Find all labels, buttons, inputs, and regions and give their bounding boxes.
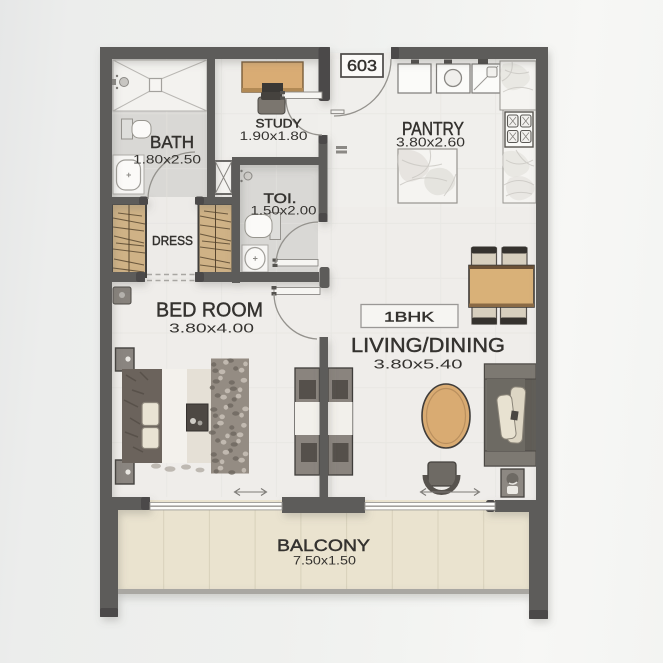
svg-text:DRESS: DRESS [152,234,193,248]
svg-text:1BHK: 1BHK [384,309,435,325]
svg-text:3.80x5.40: 3.80x5.40 [374,357,463,372]
svg-text:BALCONY: BALCONY [277,537,370,555]
svg-text:1.50x2.00: 1.50x2.00 [251,206,317,218]
svg-text:BED ROOM: BED ROOM [156,300,263,322]
svg-text:LIVING/DINING: LIVING/DINING [351,335,505,357]
svg-text:7.50x1.50: 7.50x1.50 [293,554,356,568]
svg-text:3.80x4.00: 3.80x4.00 [169,321,254,336]
svg-text:1.90x1.80: 1.90x1.80 [240,131,308,143]
svg-text:3.80x2.60: 3.80x2.60 [396,136,465,150]
svg-text:603: 603 [347,58,377,75]
svg-text:BATH: BATH [150,132,194,152]
svg-text:TOI.: TOI. [264,190,297,206]
svg-text:STUDY: STUDY [256,117,302,131]
svg-text:1.80x2.50: 1.80x2.50 [133,153,201,167]
